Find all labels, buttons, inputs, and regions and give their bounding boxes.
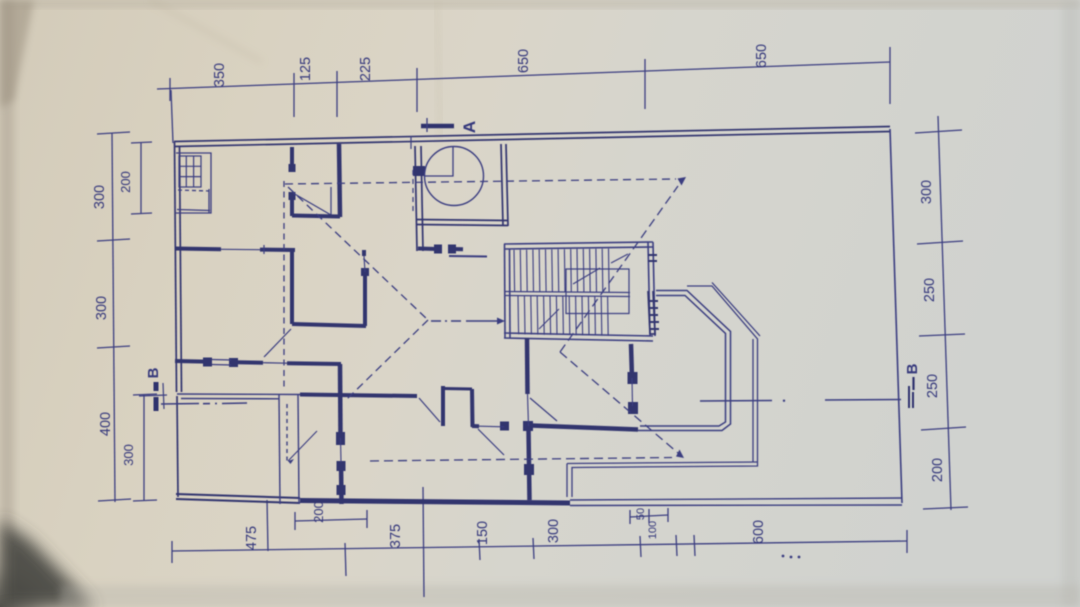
svg-text:200: 200 xyxy=(118,171,133,193)
svg-text:600: 600 xyxy=(751,520,767,544)
svg-text:250: 250 xyxy=(925,374,941,398)
svg-text:150: 150 xyxy=(475,521,491,545)
svg-text:300: 300 xyxy=(121,444,136,466)
svg-text:400: 400 xyxy=(98,412,114,436)
svg-text:B: B xyxy=(904,363,921,374)
svg-text:200: 200 xyxy=(930,458,946,482)
svg-text:300: 300 xyxy=(919,180,935,204)
svg-text:200: 200 xyxy=(311,501,326,523)
svg-text:225: 225 xyxy=(358,57,374,81)
svg-text:50: 50 xyxy=(635,508,647,520)
svg-text:375: 375 xyxy=(388,524,404,548)
svg-text:125: 125 xyxy=(298,57,314,81)
svg-text:650: 650 xyxy=(516,49,532,73)
svg-text:A: A xyxy=(460,121,479,133)
svg-text:350: 350 xyxy=(212,63,228,87)
svg-text:B: B xyxy=(145,367,162,378)
svg-text:300: 300 xyxy=(92,185,108,209)
svg-text:100: 100 xyxy=(647,521,659,539)
svg-text:250: 250 xyxy=(922,278,938,302)
svg-text:300: 300 xyxy=(94,296,110,320)
svg-text:475: 475 xyxy=(244,526,260,550)
svg-text:650: 650 xyxy=(754,44,770,68)
svg-text:300: 300 xyxy=(546,519,562,543)
